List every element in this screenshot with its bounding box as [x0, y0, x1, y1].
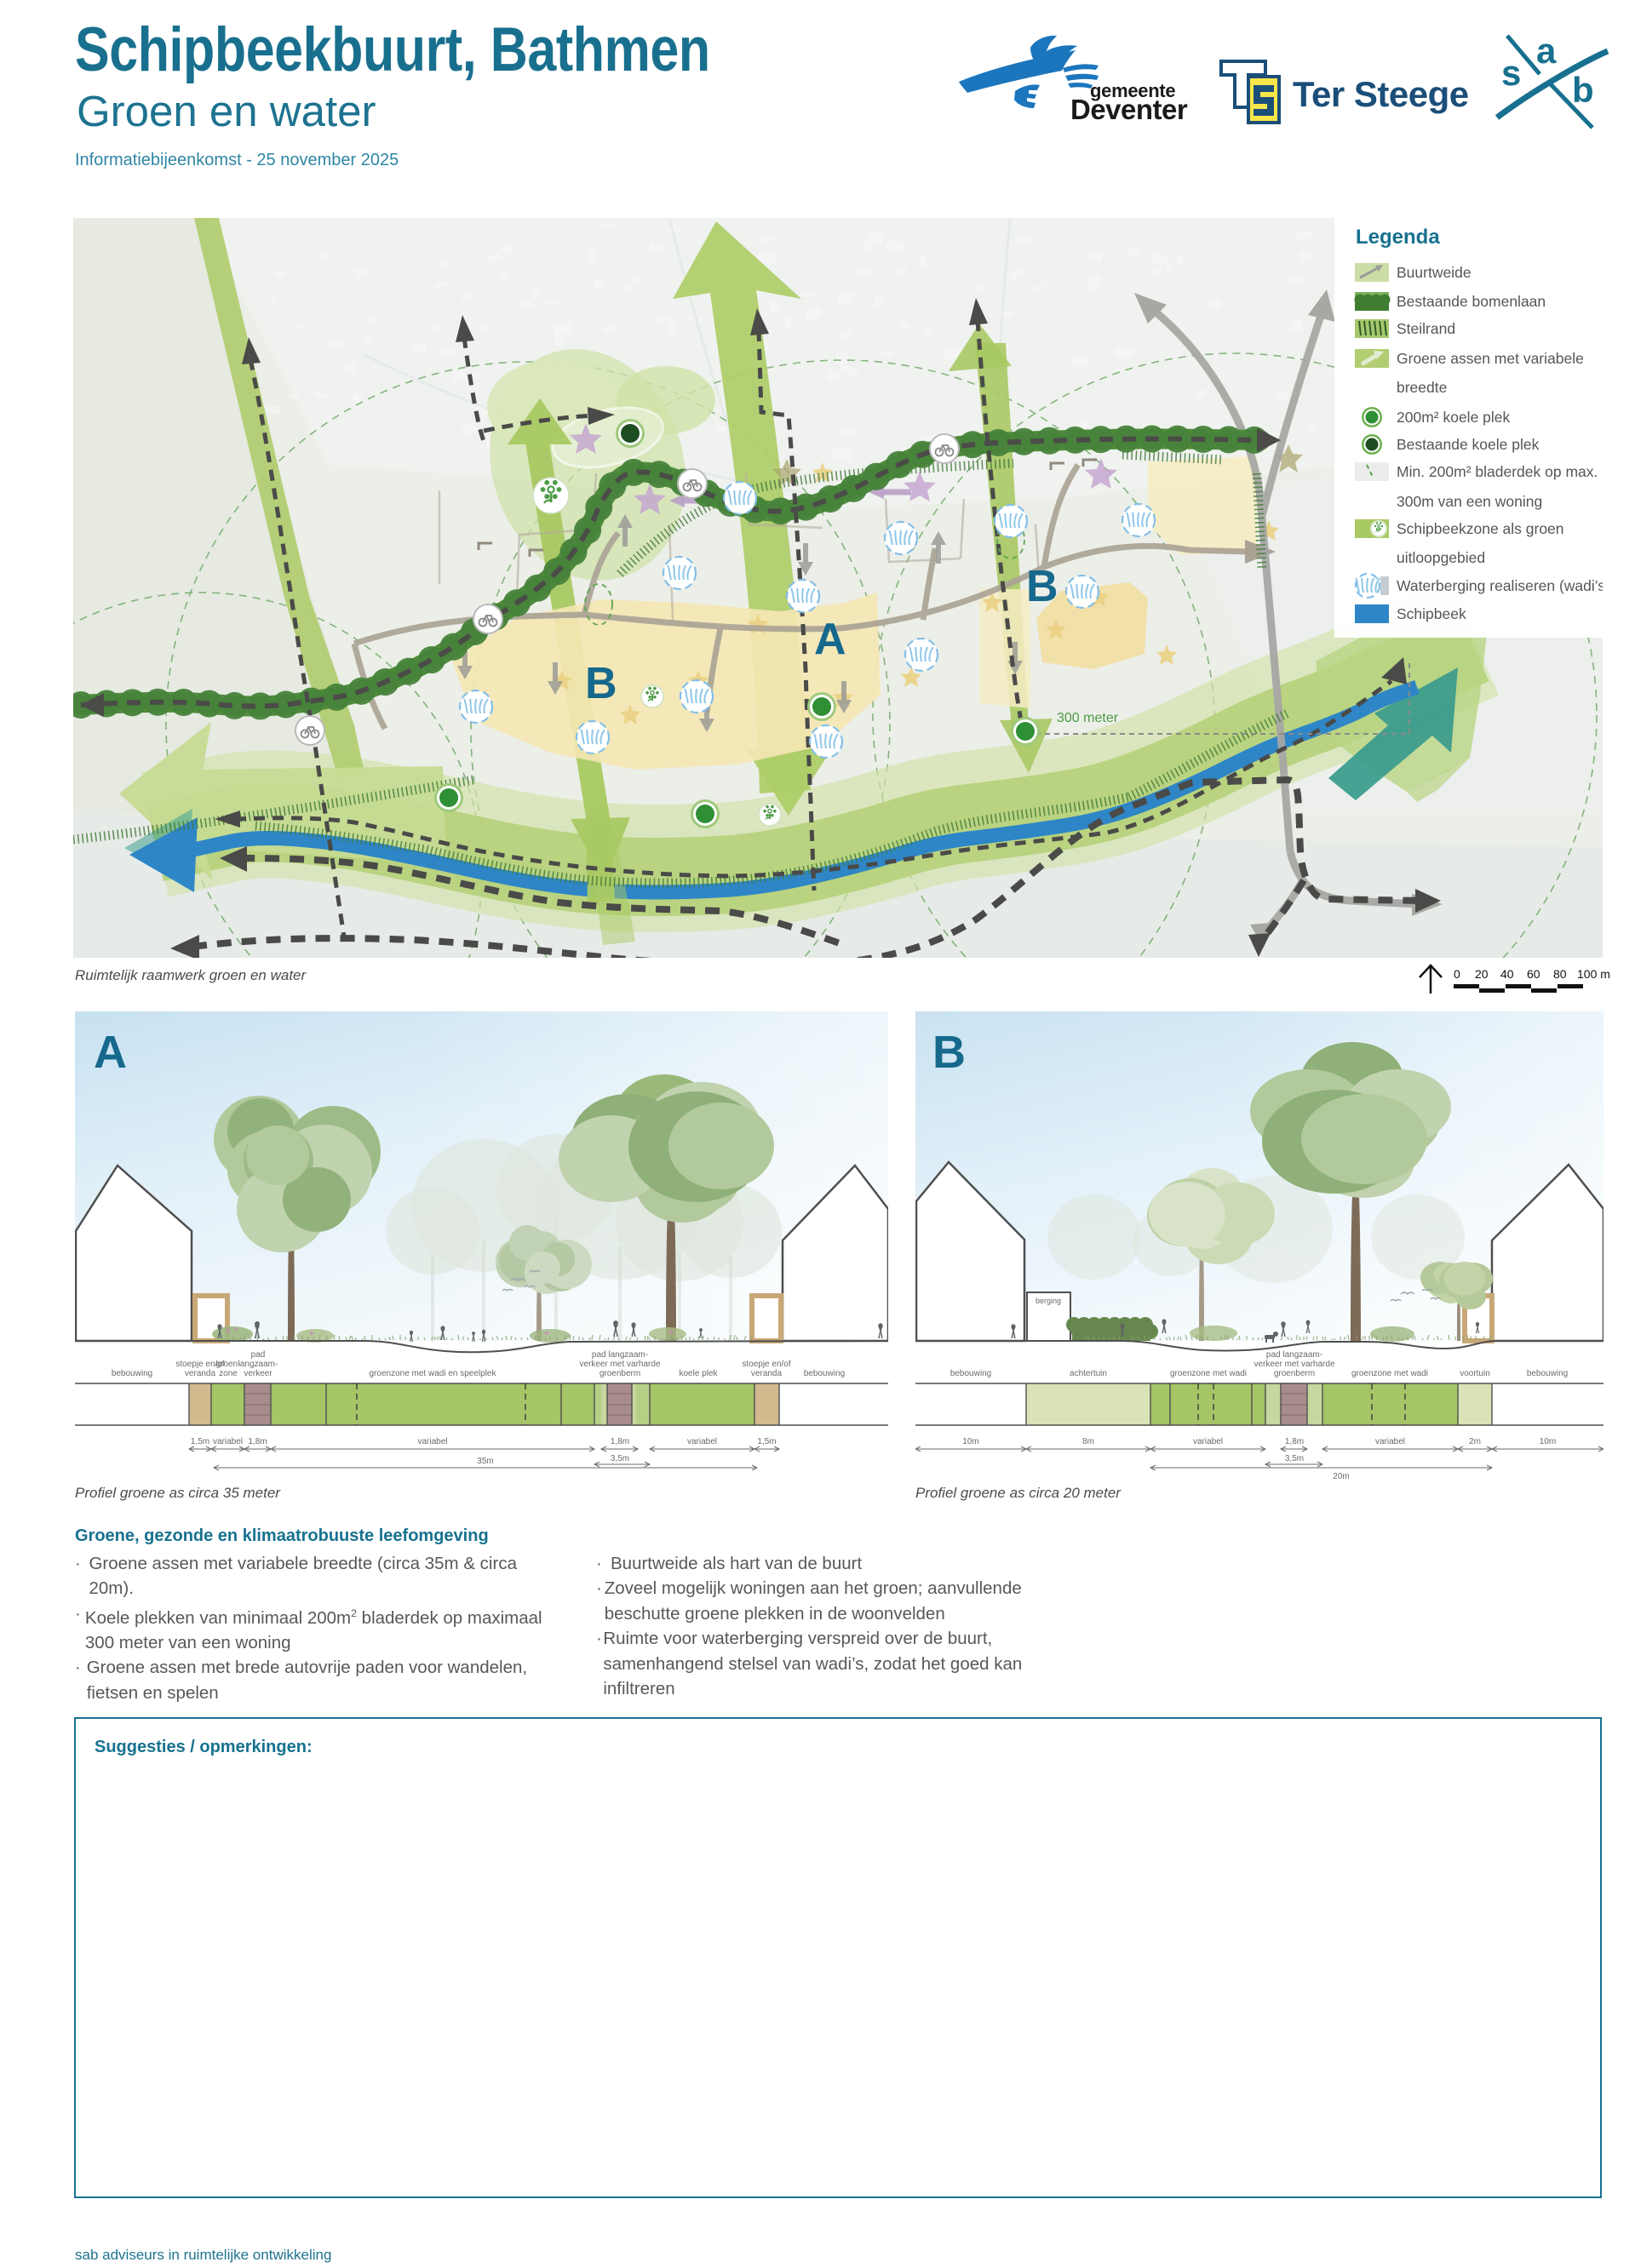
svg-text:s: s	[1501, 53, 1521, 93]
svg-text:b: b	[1572, 70, 1594, 110]
svg-text:100 m: 100 m	[1577, 967, 1610, 981]
svg-text:groenberm: groenberm	[599, 1369, 640, 1378]
svg-text:uitloopgebied: uitloopgebied	[1397, 549, 1485, 566]
svg-text:0: 0	[1454, 967, 1460, 981]
svg-text:2m: 2m	[1469, 1437, 1481, 1446]
svg-text:1,5m: 1,5m	[757, 1437, 776, 1446]
svg-text:berging: berging	[1035, 1297, 1061, 1305]
svg-text:A: A	[94, 1027, 127, 1078]
svg-text:20m: 20m	[1333, 1472, 1349, 1481]
svg-text:bebouwing: bebouwing	[950, 1369, 991, 1378]
svg-text:B: B	[1026, 562, 1058, 611]
svg-text:Groene assen met variabele: Groene assen met variabele	[1397, 350, 1584, 367]
svg-text:B: B	[932, 1027, 966, 1078]
svg-text:voortuin: voortuin	[1460, 1369, 1490, 1378]
svg-text:300m van een woning: 300m van een woning	[1397, 493, 1542, 510]
svg-text:breedte: breedte	[1397, 379, 1447, 396]
svg-text:stoepje en/of: stoepje en/of	[742, 1360, 790, 1369]
svg-text:B: B	[585, 659, 617, 708]
svg-text:variabel: variabel	[687, 1437, 717, 1446]
svg-text:3,5m: 3,5m	[1285, 1454, 1304, 1463]
svg-text:zone: zone	[219, 1369, 238, 1378]
svg-text:Waterberging realiseren (wadi’: Waterberging realiseren (wadi’s)	[1397, 577, 1603, 594]
svg-text:Steilrand: Steilrand	[1397, 320, 1455, 337]
svg-text:variabel: variabel	[213, 1437, 243, 1446]
svg-text:verkeer met varharde: verkeer met varharde	[579, 1360, 660, 1369]
svg-text:variabel: variabel	[417, 1437, 447, 1446]
svg-text:verkeer: verkeer	[244, 1369, 272, 1378]
svg-text:langzaam-: langzaam-	[238, 1360, 278, 1369]
svg-text:pad: pad	[251, 1350, 266, 1360]
svg-text:groenzone met wadi: groenzone met wadi	[1351, 1369, 1428, 1378]
svg-text:1,8m: 1,8m	[248, 1437, 267, 1446]
svg-text:variabel: variabel	[1193, 1437, 1223, 1446]
svg-text:40: 40	[1500, 967, 1514, 981]
svg-text:groen-: groen-	[216, 1360, 241, 1369]
svg-text:20: 20	[1475, 967, 1489, 981]
svg-text:Schipbeek: Schipbeek	[1397, 605, 1466, 622]
svg-text:bebouwing: bebouwing	[804, 1369, 845, 1378]
svg-text:10m: 10m	[1540, 1437, 1556, 1446]
svg-text:groenberm: groenberm	[1274, 1369, 1315, 1378]
svg-text:bebouwing: bebouwing	[112, 1369, 152, 1378]
svg-text:A: A	[814, 615, 846, 664]
svg-text:verkeer met varharde: verkeer met varharde	[1253, 1360, 1334, 1369]
svg-text:300 meter: 300 meter	[1057, 711, 1119, 725]
svg-text:1,5m: 1,5m	[191, 1437, 209, 1446]
svg-text:35m: 35m	[477, 1457, 493, 1466]
svg-text:koele plek: koele plek	[679, 1369, 718, 1378]
svg-text:60: 60	[1527, 967, 1540, 981]
svg-text:pad langzaam-: pad langzaam-	[592, 1350, 648, 1360]
svg-text:Legenda: Legenda	[1356, 226, 1440, 249]
svg-text:groenzone met wadi: groenzone met wadi	[1170, 1369, 1247, 1378]
svg-text:Buurtweide: Buurtweide	[1397, 264, 1471, 281]
svg-text:a: a	[1536, 31, 1557, 71]
svg-text:groenzone met wadi en speelple: groenzone met wadi en speelplek	[370, 1369, 497, 1378]
svg-text:10m: 10m	[962, 1437, 978, 1446]
svg-text:Ter Steege: Ter Steege	[1293, 74, 1469, 114]
svg-text:Min. 200m² bladerdek op max.: Min. 200m² bladerdek op max.	[1397, 463, 1598, 480]
svg-text:1,8m: 1,8m	[611, 1437, 629, 1446]
svg-text:Bestaande bomenlaan: Bestaande bomenlaan	[1397, 293, 1546, 310]
svg-text:Schipbeekzone als groen: Schipbeekzone als groen	[1397, 520, 1564, 537]
svg-text:80: 80	[1553, 967, 1567, 981]
svg-text:pad langzaam-: pad langzaam-	[1266, 1350, 1322, 1360]
svg-text:Bestaande koele plek: Bestaande koele plek	[1397, 436, 1540, 453]
svg-text:veranda: veranda	[185, 1369, 216, 1378]
svg-text:achtertuin: achtertuin	[1070, 1369, 1107, 1378]
svg-text:veranda: veranda	[751, 1369, 783, 1378]
svg-text:8m: 8m	[1082, 1437, 1094, 1446]
svg-text:Deventer: Deventer	[1070, 94, 1188, 125]
svg-text:bebouwing: bebouwing	[1527, 1369, 1568, 1378]
svg-text:3,5m: 3,5m	[611, 1454, 629, 1463]
svg-text:200m² koele plek: 200m² koele plek	[1397, 409, 1511, 426]
svg-text:variabel: variabel	[1375, 1437, 1405, 1446]
svg-text:1,8m: 1,8m	[1285, 1437, 1304, 1446]
